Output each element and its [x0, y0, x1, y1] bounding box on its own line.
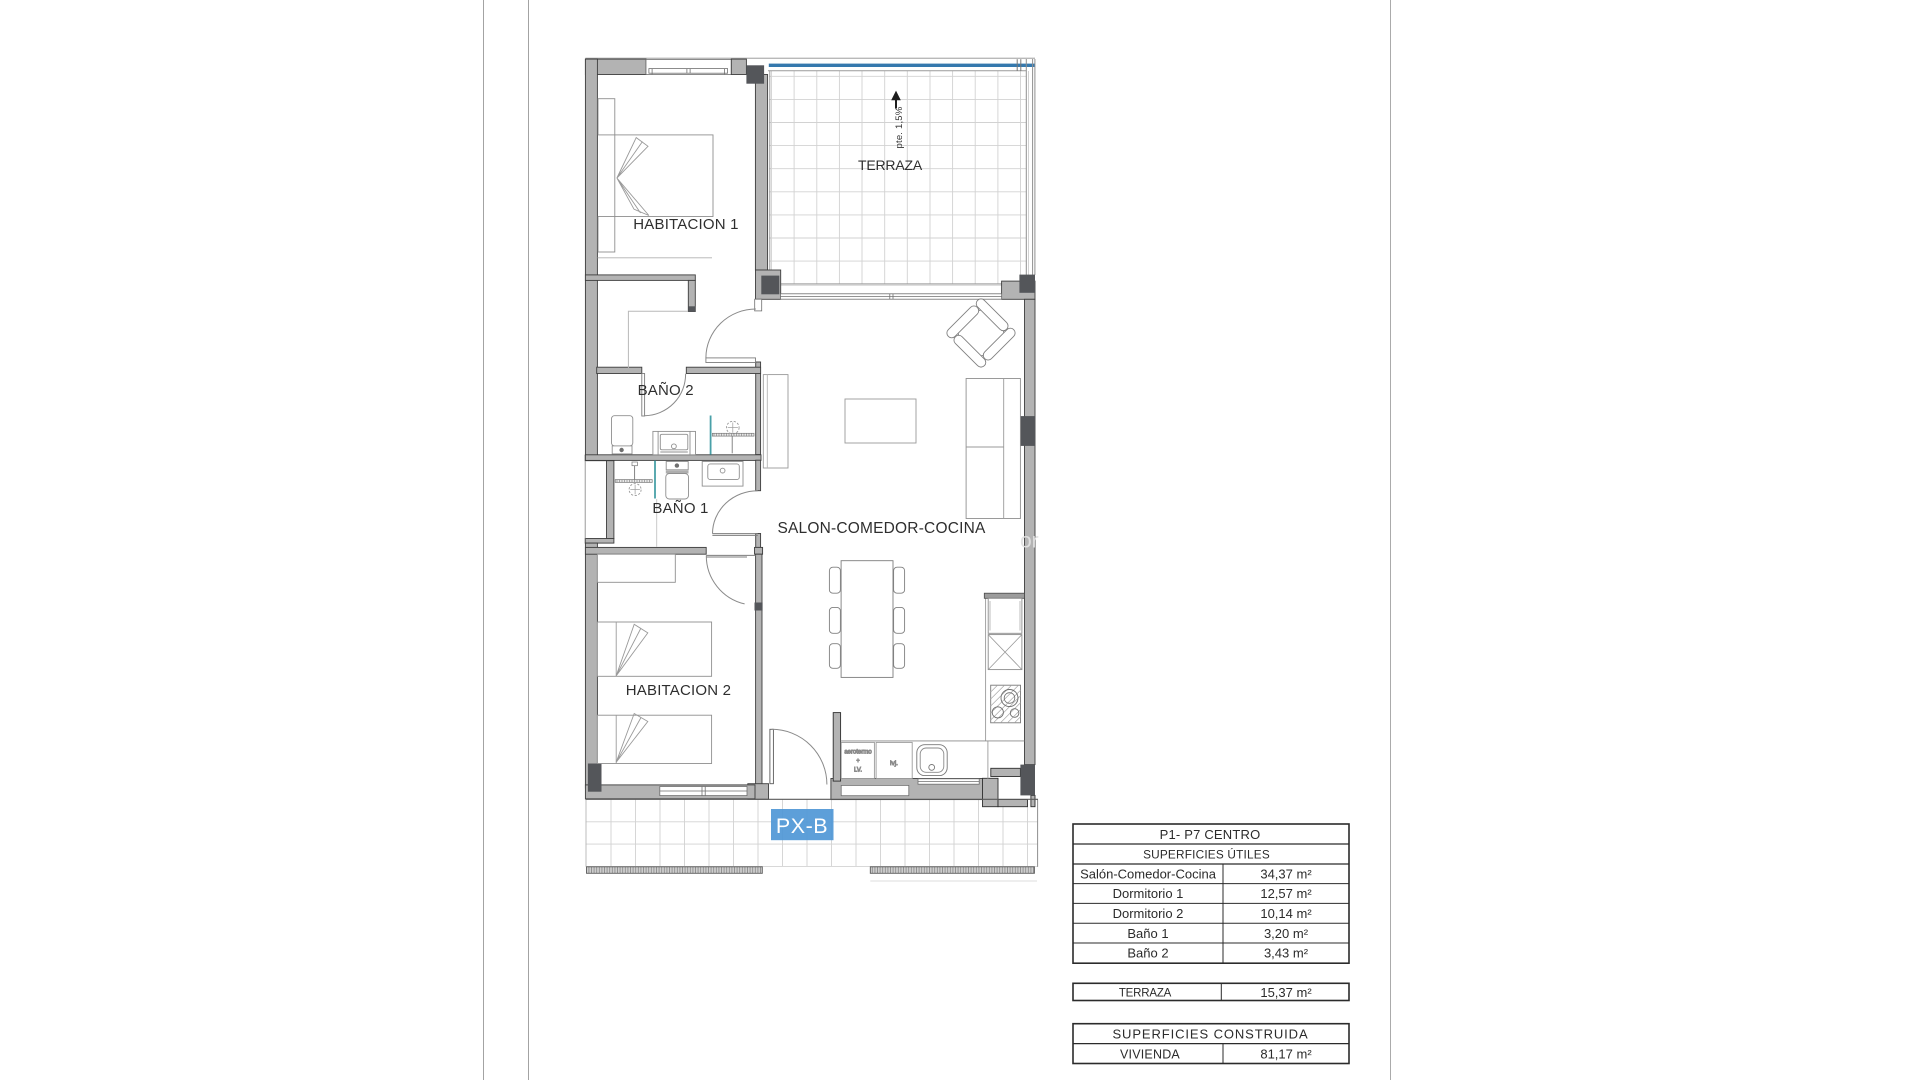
- svg-text:SUPERFICIES ÚTILES: SUPERFICIES ÚTILES: [1143, 848, 1270, 862]
- svg-text:+: +: [856, 759, 860, 765]
- svg-text:Baño 1: Baño 1: [1127, 926, 1168, 941]
- svg-text:TERRAZA: TERRAZA: [1119, 987, 1172, 999]
- svg-text:SUPERFICIES CONSTRUIDA: SUPERFICIES CONSTRUIDA: [1112, 1027, 1308, 1042]
- svg-text:34,37 m²: 34,37 m²: [1260, 866, 1312, 881]
- svg-text:Dormitorio 2: Dormitorio 2: [1113, 906, 1184, 921]
- svg-text:pte. 1,5%: pte. 1,5%: [894, 106, 905, 148]
- svg-text:SALON-COMEDOR-COCINA: SALON-COMEDOR-COCINA: [777, 520, 986, 537]
- svg-text:81,17 m²: 81,17 m²: [1260, 1046, 1312, 1061]
- svg-text:10,14 m²: 10,14 m²: [1260, 906, 1312, 921]
- svg-text:LV.: LV.: [854, 768, 862, 774]
- svg-text:TERRAZA: TERRAZA: [858, 157, 923, 173]
- svg-text:HABITACION 2: HABITACION 2: [626, 682, 731, 699]
- svg-text:Salón-Comedor-Cocina: Salón-Comedor-Cocina: [1080, 866, 1217, 881]
- svg-text:lvj.: lvj.: [890, 760, 898, 767]
- svg-text:aerotermo: aerotermo: [844, 750, 872, 756]
- svg-text:VIVIENDA: VIVIENDA: [1120, 1047, 1180, 1061]
- svg-text:3,20 m²: 3,20 m²: [1264, 926, 1309, 941]
- svg-text:BAÑO 2: BAÑO 2: [638, 382, 694, 399]
- svg-text:Baño 2: Baño 2: [1127, 946, 1168, 961]
- svg-text:P1- P7 CENTRO: P1- P7 CENTRO: [1160, 827, 1261, 842]
- svg-text:HABITACION 1: HABITACION 1: [633, 216, 738, 233]
- svg-text:15,37 m²: 15,37 m²: [1260, 985, 1312, 1000]
- svg-text:12,57 m²: 12,57 m²: [1260, 886, 1312, 901]
- svg-text:BAÑO 1: BAÑO 1: [652, 500, 708, 517]
- svg-text:or: or: [1020, 530, 1039, 553]
- svg-text:PX-B: PX-B: [776, 814, 828, 838]
- svg-text:3,43 m²: 3,43 m²: [1264, 946, 1309, 961]
- svg-text:Dormitorio 1: Dormitorio 1: [1113, 886, 1184, 901]
